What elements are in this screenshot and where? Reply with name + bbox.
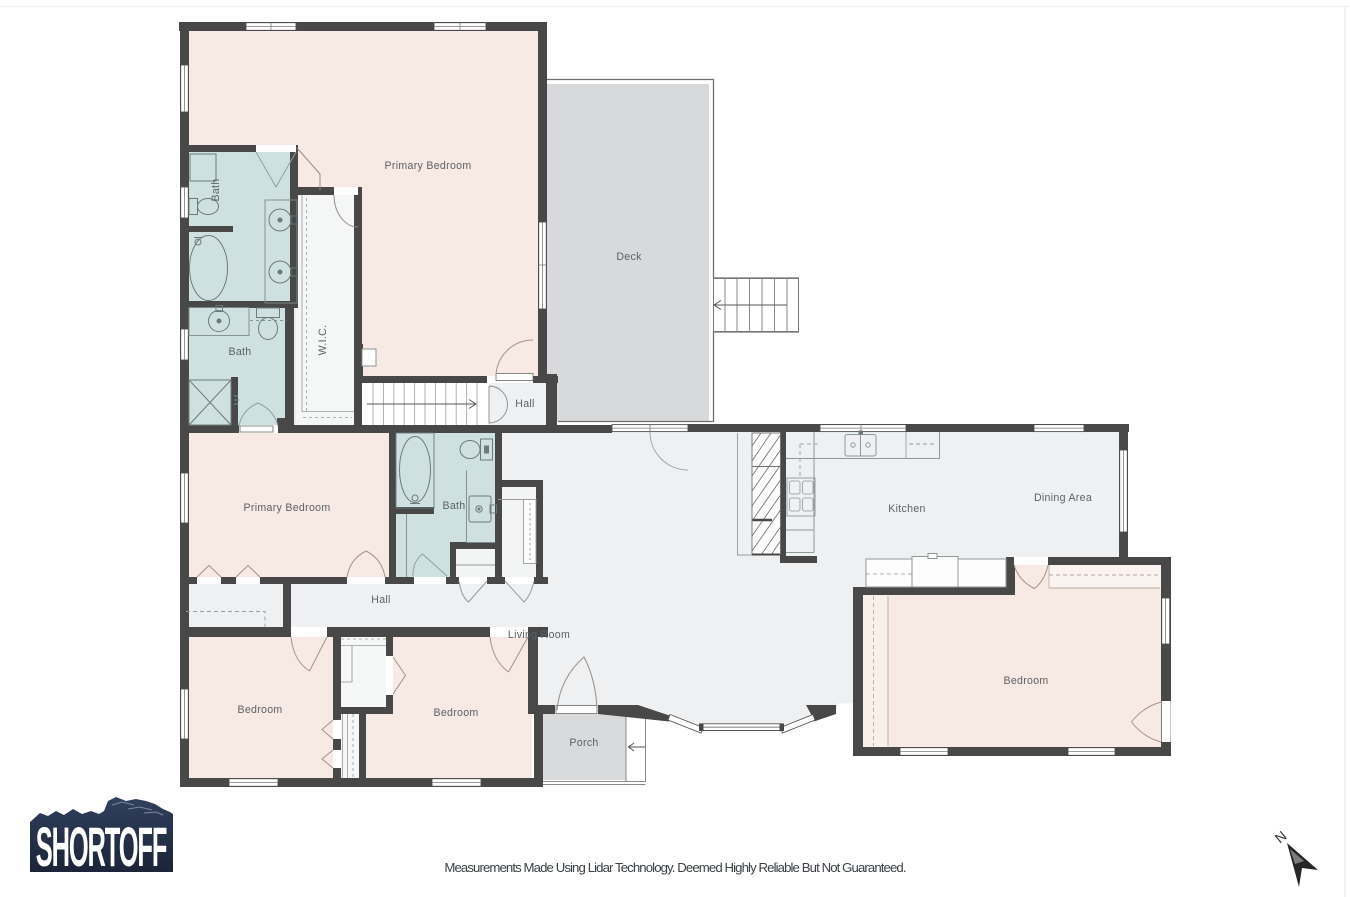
svg-text:SHORTOFF: SHORTOFF [36,817,167,879]
svg-text:Dining Area: Dining Area [1034,492,1092,504]
svg-text:Measurements Made Using Lidar: Measurements Made Using Lidar Technology… [444,860,905,875]
svg-text:Bedroom: Bedroom [433,707,478,719]
svg-text:Primary Bedroom: Primary Bedroom [385,160,472,172]
svg-text:Bath: Bath [229,346,252,358]
svg-text:Deck: Deck [616,251,642,263]
svg-text:W.I.C.: W.I.C. [317,325,329,356]
svg-text:Living Room: Living Room [508,629,570,641]
svg-text:Bath: Bath [443,500,466,512]
svg-text:Primary Bedroom: Primary Bedroom [244,502,331,514]
svg-text:Hall: Hall [515,398,534,410]
svg-text:Bedroom: Bedroom [1003,675,1048,687]
svg-text:Bedroom: Bedroom [237,704,282,716]
svg-text:Kitchen: Kitchen [888,503,925,515]
svg-text:Hall: Hall [371,594,390,606]
svg-text:Porch: Porch [569,737,598,749]
svg-text:Bath: Bath [210,179,222,202]
